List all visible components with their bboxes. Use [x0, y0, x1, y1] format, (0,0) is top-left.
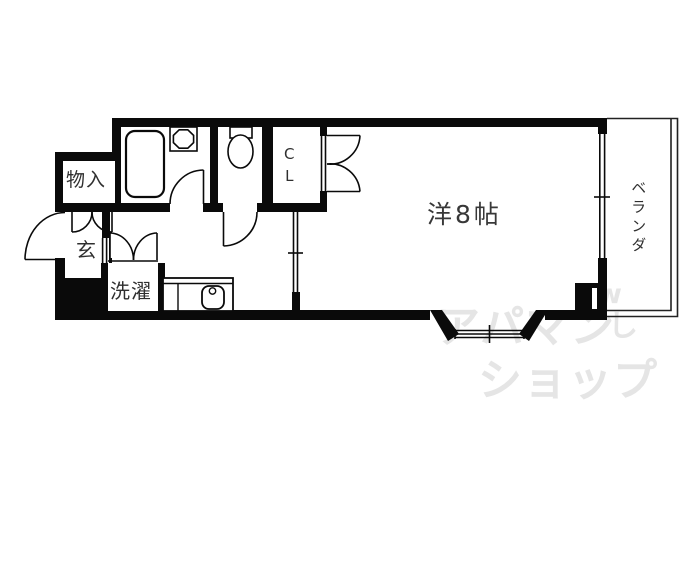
wall-bath-toilet — [210, 118, 218, 212]
wall-toilet-closet — [262, 118, 273, 212]
bathtub — [126, 131, 164, 197]
wall-right-top — [598, 118, 607, 134]
wash-basin-octagon — [173, 130, 193, 148]
laundry-label: 洗濯 — [110, 280, 152, 303]
wall-band-1 — [112, 203, 170, 212]
toilet-door-arc — [224, 212, 258, 246]
entrance-label: 玄 — [76, 239, 96, 262]
entrance-door-arc — [25, 213, 65, 260]
laundry-door-arc-right — [134, 233, 158, 260]
wall-closet-right-top — [320, 118, 327, 136]
bath-door-arc — [170, 170, 204, 204]
storage-label: 物入 — [66, 170, 106, 192]
wall-band-2 — [203, 203, 223, 212]
kitchen-faucet — [209, 288, 215, 294]
wall-right-bottom — [598, 258, 607, 320]
closet-label: C L — [284, 144, 294, 188]
toilet-bowl — [228, 135, 253, 168]
floorplan-drawing — [0, 0, 690, 575]
veranda-label: ベランダ — [629, 180, 646, 266]
main-room-label: 洋8帖 — [427, 201, 502, 230]
laundry-door-arc-left — [110, 233, 134, 260]
closet-door-arc-top — [327, 136, 360, 165]
floorplan-image: アパマン w し ショップ — [0, 0, 690, 575]
wall-top — [112, 118, 607, 127]
closet-door-arc-bottom — [327, 164, 360, 192]
wall-bottom-right — [545, 310, 577, 320]
pillar-notch — [592, 288, 597, 309]
wall-band-3 — [257, 203, 327, 212]
wall-bottom-main — [55, 310, 430, 320]
